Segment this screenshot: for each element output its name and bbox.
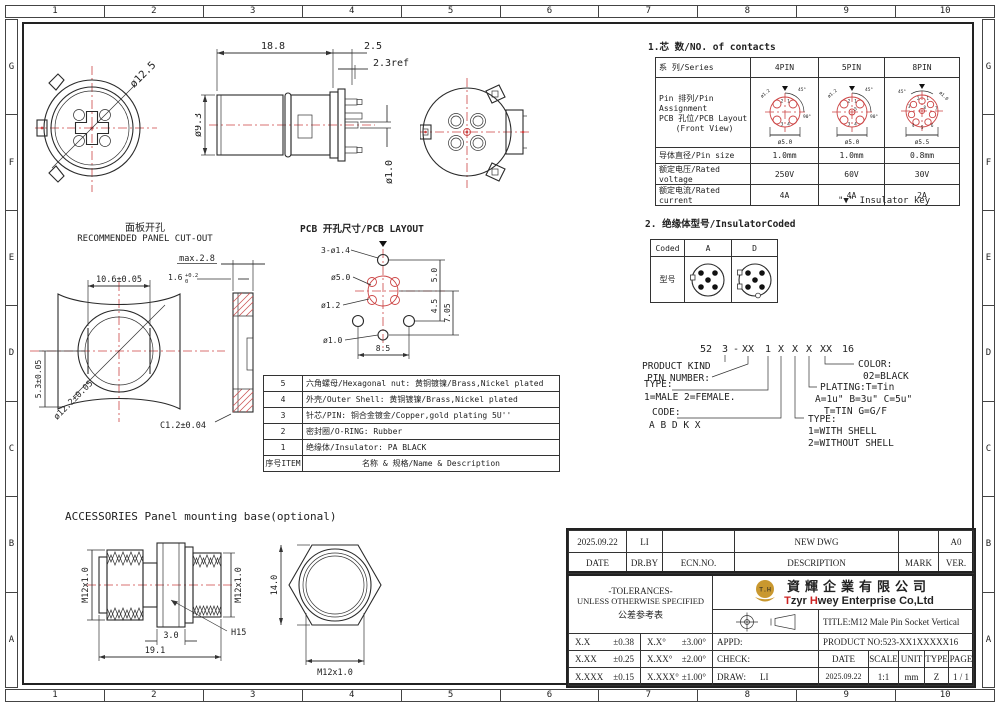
pin-size-8pin: 0.8mm xyxy=(885,148,960,164)
part-desc: 六角螺母/Hexagonal nut: 黄铜镀镍/Brass,Nickel pl… xyxy=(303,376,560,392)
pcb-v2-label: 4.5 xyxy=(430,299,439,314)
pcb-holes-label: 3-ø1.4 xyxy=(321,246,350,255)
coded-d: D xyxy=(732,240,778,257)
acc-thread-front-label: M12x1.0 xyxy=(317,668,353,678)
insulator-table: Coded A D 型号 xyxy=(650,239,778,303)
contacts-table: 系 列/Series 4PIN 5PIN 8PIN Pin 排列/Pin Ass… xyxy=(655,57,960,206)
rated-current-label: 额定电流/Rated current xyxy=(656,185,751,206)
part-desc: 绝缘体/Insulator: PA BLACK xyxy=(303,440,560,456)
ruler-row: C xyxy=(6,402,17,497)
pin-label-line: PCB 孔位/PCB Layout xyxy=(659,113,750,124)
rev-date-header: DATE xyxy=(569,553,627,574)
drawing-title: TITLE:M12 Male Pin Socket Vertical xyxy=(819,610,974,634)
front-dia-label: ø12.5 xyxy=(128,59,159,90)
ruler-row: B xyxy=(983,497,994,592)
ruler-row: D xyxy=(6,306,17,401)
pn-type1-values: 1=MALE 2=FEMALE. xyxy=(644,392,736,403)
current-4pin: 4A xyxy=(751,185,819,206)
info-page-value: 1 / 1 xyxy=(949,668,974,686)
company-name-part: wey Enterprise Co,Ltd xyxy=(818,595,934,607)
info-unit-header: UNIT xyxy=(899,651,925,668)
pcb-layout-title: PCB 开孔尺寸/PCB LAYOUT xyxy=(300,221,424,235)
ruler-col: 6 xyxy=(501,6,600,17)
tol-value: ±0.38 xyxy=(613,637,634,647)
tol-label: X.X° xyxy=(647,637,666,647)
panel-width-label: 10.6±0.05 xyxy=(96,275,142,285)
coded-a: A xyxy=(685,240,732,257)
pn-code-part: - xyxy=(733,344,739,355)
pn-code-part: X xyxy=(792,344,798,355)
pn-plating-v1: A=1u" B=3u" C=5u" xyxy=(815,394,912,405)
tolerances-cn: 公差参考表 xyxy=(569,608,712,621)
product-no: PRODUCT NO:523-XX1XXXXX16 xyxy=(819,634,974,651)
pin-size-label: 导体直径/Pin size xyxy=(656,148,751,164)
ruler-col: 3 xyxy=(204,6,303,17)
ruler-row: F xyxy=(6,115,17,210)
pin-number: 1 xyxy=(787,98,790,104)
company-name-cn: 資輝企業有限公司 xyxy=(784,576,934,595)
pin-number: 4 xyxy=(854,121,857,127)
company-initial-h: H xyxy=(810,595,818,607)
pin-number: 5 xyxy=(854,106,857,112)
pn-product-kind: PRODUCT KIND xyxy=(642,361,711,372)
ruler-top: 1 2 3 4 5 6 7 8 9 10 xyxy=(5,5,995,18)
ruler-right: G F E D C B A xyxy=(982,19,995,688)
pn-color: COLOR: xyxy=(858,359,892,370)
check-cell: CHECK: xyxy=(713,651,819,668)
pin-dia-label: ø1.2 xyxy=(759,87,771,99)
accessories-title: ACCESSORIES Panel mounting base(optional… xyxy=(65,510,337,523)
pn-color-value: 02=BLACK xyxy=(863,371,909,382)
rev-drby: LI xyxy=(627,531,663,553)
info-scale-value: 1:1 xyxy=(869,668,899,686)
tolerances-title: -TOLERANCES- xyxy=(569,586,712,596)
rev-ecn xyxy=(663,531,735,553)
ruler-row: G xyxy=(6,20,17,115)
company-name-en: Tzyr Hwey Enterprise Co,Ltd xyxy=(784,595,934,607)
insulator-heading: 2. 绝缘体型号/InsulatorCoded xyxy=(645,216,795,230)
ruler-col: 5 xyxy=(402,690,501,701)
ruler-col: 1 xyxy=(6,690,105,701)
info-scale-header: SCALE xyxy=(869,651,899,668)
part-item: 1 xyxy=(264,440,303,456)
ruler-left: G F E D C B A xyxy=(5,19,18,688)
pin-number: 8 xyxy=(924,105,927,110)
model-label: 型号 xyxy=(651,257,685,303)
pn-code-part: X xyxy=(806,344,812,355)
tolerance-header: -TOLERANCES- UNLESS OTHERWISE SPECIFIED … xyxy=(569,574,713,634)
company-cell: T.H 資輝企業有限公司 Tzyr Hwey Enterprise Co,Ltd xyxy=(713,574,974,610)
pin-number: 3 xyxy=(847,121,850,127)
pin-diagram-4pin: 2 1 3 4 ø1.2 45° 90° ø5.0 xyxy=(751,78,819,148)
appd-cell: APPD: xyxy=(713,634,819,651)
pcb-width-label: 8.5 xyxy=(376,344,391,353)
rev-ver-header: VER. xyxy=(939,553,974,574)
ruler-col: 4 xyxy=(303,6,402,17)
pcb-pin-label: ø1.2 xyxy=(321,301,340,310)
front-view-drawing: ø12.5 xyxy=(35,50,185,215)
pn-code-part: 16 xyxy=(842,344,854,355)
rev-mark-header: MARK xyxy=(899,553,939,574)
rev-mark xyxy=(899,531,939,553)
ruler-col: 7 xyxy=(599,690,698,701)
ruler-col: 9 xyxy=(797,690,896,701)
side-view-drawing: 18.8 2.5 2.3ref ø9.3 ø1.0 xyxy=(195,35,420,210)
panel-cutout-drawing: ø12.2±0.05 10.6±0.05 5.3±0.05 max.2.8 1.… xyxy=(25,250,275,440)
part-desc: 外壳/Outer Shell: 黄铜镀镍/Brass,Nickel plated xyxy=(303,392,560,408)
info-unit-value: mm xyxy=(899,668,925,686)
title-block: 2025.09.22 LI NEW DWG A0 DATE DR.BY ECN.… xyxy=(568,530,974,685)
col-5pin: 5PIN xyxy=(819,58,885,78)
panel-chamfer-label: C1.2±0.04 xyxy=(160,421,206,431)
ruler-row: E xyxy=(6,211,17,306)
panel-title-en: RECOMMENDED PANEL CUT-OUT xyxy=(30,234,260,244)
pn-type2-v1: 1=WITH SHELL xyxy=(808,426,877,437)
pn-code-part: 1 xyxy=(765,344,771,355)
ruler-bottom: 1 2 3 4 5 6 7 8 9 10 xyxy=(5,689,995,702)
bcd-label: ø5.0 xyxy=(777,139,792,146)
coded-label: Coded xyxy=(651,240,685,257)
rear-view-drawing xyxy=(420,78,532,188)
rev-date: 2025.09.22 xyxy=(569,531,627,553)
rev-desc: NEW DWG xyxy=(735,531,899,553)
acc-thread-right-label: M12x1.0 xyxy=(234,567,244,603)
rev-desc-header: DESCRIPTION xyxy=(735,553,899,574)
pn-code-part: 3 xyxy=(722,344,728,355)
info-type-value: Z xyxy=(925,668,949,686)
rev-ver: A0 xyxy=(939,531,974,553)
ruler-col: 6 xyxy=(501,690,600,701)
tol-value: ±3.00° xyxy=(682,637,706,647)
pn-plating-v2: T=TIN G=G/F xyxy=(824,406,887,417)
pn-code-part: 52 xyxy=(700,344,712,355)
rated-voltage-label: 额定电压/Rated voltage xyxy=(656,164,751,185)
parts-desc-header: 名称 & 规格/Name & Description xyxy=(303,456,560,472)
pcb-center-label: ø1.0 xyxy=(323,336,342,345)
projection-symbol-icon xyxy=(731,612,801,632)
info-date-header: DATE xyxy=(819,651,869,668)
ruler-row: A xyxy=(6,593,17,687)
part-item: 3 xyxy=(264,408,303,424)
pin-label-line: Pin 排列/Pin Assignment xyxy=(659,93,750,113)
acc-hex-label: H15 xyxy=(231,628,246,638)
ruler-row: B xyxy=(6,497,17,592)
pin-diagram-5pin: 2 1 3 4 5 ø1.2 45° 90° ø5.0 xyxy=(819,78,885,148)
ruler-col: 5 xyxy=(402,6,501,17)
pn-type1: TYPE: xyxy=(644,379,673,390)
drawing-sheet: 1 2 3 4 5 6 7 8 9 10 1 2 3 4 5 6 7 8 9 1… xyxy=(0,0,1000,707)
tol-value: ±0.25 xyxy=(613,654,634,664)
bcd-label: ø5.5 xyxy=(915,139,930,146)
ruler-col: 8 xyxy=(698,690,797,701)
parts-table: 5 六角螺母/Hexagonal nut: 黄铜镀镍/Brass,Nickel … xyxy=(263,375,560,472)
tolerances-subtitle: UNLESS OTHERWISE SPECIFIED xyxy=(569,596,712,606)
insulator-diagram-a xyxy=(685,257,732,303)
side-ref-label: 2.3ref xyxy=(373,58,409,69)
draw-value: LI xyxy=(760,672,769,682)
info-type-header: TYPE xyxy=(925,651,949,668)
pn-type2-v2: 2=WITHOUT SHELL xyxy=(808,438,894,449)
contacts-heading: 1.芯 数/NO. of contacts xyxy=(648,39,776,53)
pin-number: 3 xyxy=(780,121,783,127)
draw-cell: DRAW:LI xyxy=(713,668,819,686)
angle-label: 45° xyxy=(865,87,873,93)
tol-label: X.X xyxy=(575,637,590,647)
part-number-diagram: 52 3 - XX 1 X X X XX 16 PRODUCT KIND PIN… xyxy=(572,338,974,470)
tol-label: X.XXX° xyxy=(647,672,679,682)
ruler-col: 10 xyxy=(896,690,994,701)
pin-number: 2 xyxy=(847,98,850,104)
pin-size-4pin: 1.0mm xyxy=(751,148,819,164)
info-page-header: PAGE xyxy=(949,651,974,668)
ruler-col: 9 xyxy=(797,6,896,17)
pin-size-5pin: 1.0mm xyxy=(819,148,885,164)
revision-table: 2025.09.22 LI NEW DWG A0 DATE DR.BY ECN.… xyxy=(568,530,974,574)
panel-t-sub: 0 xyxy=(185,279,188,285)
tol-label: X.XXX xyxy=(575,672,603,682)
panel-title-cn: 面板开孔 xyxy=(30,219,260,234)
pn-code-part: XX xyxy=(820,344,832,355)
panel-half-label: 5.3±0.05 xyxy=(34,360,43,399)
company-name-part: zyr xyxy=(791,595,810,607)
insulator-key-note: "▼" Insulator key xyxy=(838,196,930,206)
panel-maxt-label: max.2.8 xyxy=(179,254,215,264)
ruler-col: 4 xyxy=(303,690,402,701)
part-desc: 密封圈/O-RING: Rubber xyxy=(303,424,560,440)
col-4pin: 4PIN xyxy=(751,58,819,78)
acc-thread-left-label: M12x1.0 xyxy=(81,567,91,603)
ruler-col: 2 xyxy=(105,690,204,701)
voltage-4pin: 250V xyxy=(751,164,819,185)
pn-code-part: X xyxy=(778,344,784,355)
pn-code-part: XX xyxy=(742,344,754,355)
ruler-col: 1 xyxy=(6,6,105,17)
ruler-col: 3 xyxy=(204,690,303,701)
col-8pin: 8PIN xyxy=(885,58,960,78)
side-pindia-label: ø1.0 xyxy=(384,160,395,184)
part-desc: 针芯/PIN: 铜合金镀金/Copper,gold plating 5U'' xyxy=(303,408,560,424)
series-label: 系 列/Series xyxy=(656,58,751,78)
tol-value: ±1.00° xyxy=(682,672,706,682)
pcb-bcd-label: ø5.0 xyxy=(331,273,350,282)
accessories-drawing: M12x1.0 M12x1.0 3.0 19.1 H15 14.0 M12x1.… xyxy=(35,525,455,685)
pin-number: 6 xyxy=(931,123,934,128)
voltage-5pin: 60V xyxy=(819,164,885,185)
projection-symbols xyxy=(713,610,819,634)
pin-diagram-8pin: 1 2 3 4 5 6 7 8 45° ø1.0 ø5.5 xyxy=(885,78,960,148)
pcb-v1-label: 5.0 xyxy=(430,268,439,283)
part-item: 4 xyxy=(264,392,303,408)
pn-code-values: A B D K X xyxy=(649,420,701,431)
pin-number: 5 xyxy=(921,125,924,130)
angle-label: 90° xyxy=(803,114,811,120)
company-initial-t: T xyxy=(784,595,791,607)
angle-label: 90° xyxy=(870,114,878,120)
ruler-row: G xyxy=(983,20,994,115)
side-pinlen-label: 2.5 xyxy=(364,41,382,52)
pin-number: 1 xyxy=(854,98,857,104)
ruler-row: F xyxy=(983,115,994,210)
pin-assignment-label: Pin 排列/Pin Assignment PCB 孔位/PCB Layout … xyxy=(656,78,751,148)
ruler-row: D xyxy=(983,306,994,401)
company-logo: T.H xyxy=(752,579,778,605)
insulator-diagram-d xyxy=(732,257,778,303)
pin-number: 2 xyxy=(780,98,783,104)
pcb-layout-drawing: 3-ø1.4 ø5.0 ø1.2 ø1.0 5.0 4.5 7.05 8.5 xyxy=(285,237,475,385)
panel-cutout-title: 面板开孔 RECOMMENDED PANEL CUT-OUT xyxy=(30,219,260,244)
ruler-col: 8 xyxy=(698,6,797,17)
pn-plating: PLATING:T=Tin xyxy=(820,382,894,393)
rev-ecn-header: ECN.NO. xyxy=(663,553,735,574)
side-len-label: 18.8 xyxy=(261,41,285,52)
acc-height-label: 14.0 xyxy=(270,575,280,595)
info-date-value: 2025.09.22 xyxy=(819,668,869,686)
bcd-label: ø5.0 xyxy=(844,139,859,146)
logo-monogram: T.H xyxy=(759,585,771,593)
ruler-row: A xyxy=(983,593,994,687)
acc-hexw-label: 3.0 xyxy=(163,631,178,641)
pn-code-label: CODE: xyxy=(652,407,681,418)
tol-label: X.XX° xyxy=(647,654,672,664)
ruler-col: 2 xyxy=(105,6,204,17)
rev-drby-header: DR.BY xyxy=(627,553,663,574)
tol-value: ±2.00° xyxy=(682,654,706,664)
ruler-col: 7 xyxy=(599,6,698,17)
draw-label: DRAW: xyxy=(717,672,746,682)
ruler-row: C xyxy=(983,402,994,497)
ruler-col: 10 xyxy=(896,6,994,17)
tol-value: ±0.15 xyxy=(613,672,634,682)
voltage-8pin: 30V xyxy=(885,164,960,185)
panel-t-main: 1.6 xyxy=(168,273,183,282)
pin-number: 4 xyxy=(787,121,790,127)
angle-label: 45° xyxy=(798,87,806,93)
pin-label-line: (Front View) xyxy=(659,124,750,133)
pin-dia-label: ø1.2 xyxy=(826,87,838,99)
tol-label: X.XX xyxy=(575,654,597,664)
ruler-row: E xyxy=(983,211,994,306)
part-item: 2 xyxy=(264,424,303,440)
acc-len-label: 19.1 xyxy=(145,646,165,656)
pin-dia-label: ø1.0 xyxy=(938,90,950,102)
parts-item-header: 序号ITEM xyxy=(264,456,303,472)
angle-label: 45° xyxy=(898,89,906,95)
title-block-main: -TOLERANCES- UNLESS OTHERWISE SPECIFIED … xyxy=(568,573,974,686)
pcb-v3-label: 7.05 xyxy=(443,303,452,322)
part-item: 5 xyxy=(264,376,303,392)
side-bodydia-label: ø9.3 xyxy=(195,113,204,137)
